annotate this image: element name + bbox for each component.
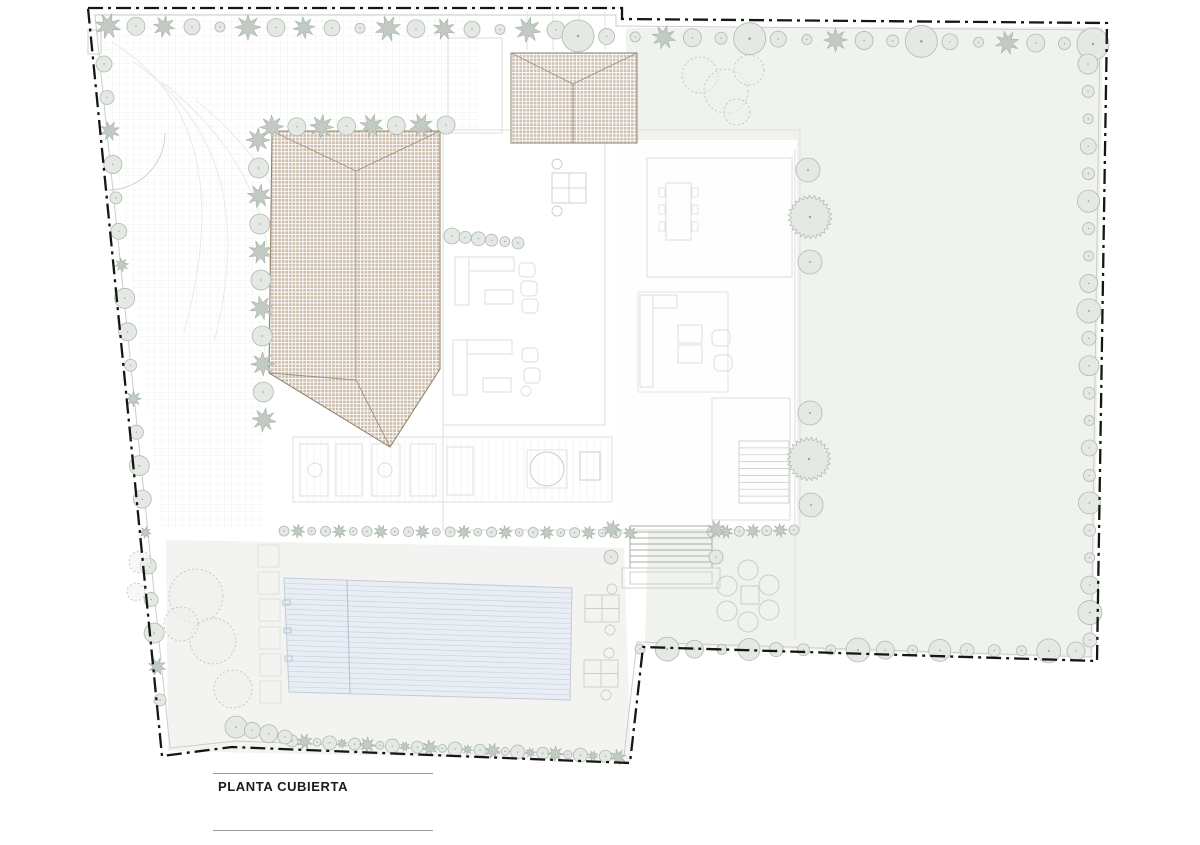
terrace-cabinet	[410, 444, 436, 496]
shrub-band-roof-left-tree-icon-center	[259, 223, 261, 225]
shrub-row-courtyard-tree-icon-center	[504, 241, 505, 242]
tree-row-bottom-right-tree-icon-center	[1075, 650, 1076, 651]
shrub-band-roof-left-tree-icon-center	[258, 167, 260, 169]
hedge-bottom-tree-icon-center	[316, 742, 317, 743]
shrub-row-pool-corner-tree-icon-center	[252, 730, 253, 731]
garden-tree-icon-center	[809, 261, 811, 263]
tree-col-left-tree-icon-center	[153, 632, 155, 634]
tree-row-top-left-tree-icon-center	[135, 26, 136, 27]
hedge-mid-left-tree-icon-center	[491, 532, 492, 533]
tree-col-right-tree-icon-center	[1088, 365, 1090, 367]
tree-row-bottom-right-tree-icon-center	[966, 650, 967, 651]
tree-col-right-tree-icon-center	[1087, 118, 1088, 119]
shrub-band-roof-top-tree-icon-center	[396, 125, 397, 126]
tree-col-right-tree-icon-center	[1087, 91, 1088, 92]
shrub-icon	[291, 524, 305, 538]
tree-col-right-tree-icon-center	[1089, 584, 1090, 585]
tree-row-top-right-tree-icon-center	[720, 38, 721, 39]
shrub-icon	[582, 526, 596, 540]
tree-col-right-tree-icon-center	[1089, 612, 1091, 614]
tree-row-top-left-tree-icon-center	[359, 28, 360, 29]
hedge-bottom-tree-icon-center	[504, 751, 505, 752]
hedge-mid-right-tree-icon-center	[793, 529, 794, 530]
garden-tree-icon-center	[807, 169, 809, 171]
tree-col-right-tree-icon-center	[1088, 392, 1089, 393]
shrub-band-roof-top-tree-icon-center	[445, 124, 446, 125]
bbq-unit	[580, 452, 600, 480]
hedge-bottom-tree-icon-center	[605, 756, 606, 757]
tree-row-top-right-tree-icon-center	[577, 35, 580, 38]
hedge-mid-left-tree-icon-center	[560, 532, 561, 533]
hedge-bottom-tree-icon-center	[417, 746, 418, 747]
tree-row-bottom-right-tree-icon-center	[694, 649, 695, 650]
tree-col-right-tree-icon-center	[1088, 146, 1089, 147]
hedge-mid-left-tree-icon-center	[366, 531, 367, 532]
tree-row-top-left-tree-icon-center	[275, 27, 276, 28]
hedge-bottom-tree-icon-center	[542, 753, 543, 754]
palm-tree-icon-center	[808, 458, 810, 460]
sofa	[469, 257, 514, 271]
tree-row-bottom-right-tree-icon-center	[666, 648, 668, 650]
shrub-icon	[149, 658, 166, 675]
hedge-bottom-tree-icon-center	[379, 745, 380, 746]
tree-col-left-tree-icon-center	[142, 498, 143, 499]
tree-row-top-left-tree-icon-center	[555, 29, 556, 30]
hedge-mid-right-tree-icon-center	[766, 530, 767, 531]
tree-col-left-tree-icon-center	[118, 231, 119, 232]
organic-tree-icon	[164, 607, 198, 641]
tree-col-left-tree-icon-center	[136, 432, 137, 433]
tree-col-left-tree-icon-center	[139, 465, 141, 467]
tree-col-left-tree-icon-center	[112, 164, 113, 165]
hedge-mid-left-tree-icon-center	[602, 532, 603, 533]
tree-col-right-tree-icon-center	[1088, 200, 1090, 202]
shrub-row-courtyard-tree-icon-center	[491, 240, 492, 241]
hedge-mid-left-tree-icon-center	[408, 531, 409, 532]
tree-row-top-left-tree-icon-center	[219, 26, 220, 27]
tree-col-left-tree-icon-center	[106, 97, 107, 98]
armchair	[524, 368, 540, 383]
shrub-row-courtyard-tree-icon-center	[465, 237, 466, 238]
hedge-mid-left-tree-icon-center	[283, 530, 284, 531]
chair	[552, 206, 562, 216]
armchair	[521, 281, 537, 296]
tree-row-bottom-right-tree-icon-center	[885, 649, 886, 650]
hedge-mid-left-tree-icon-center	[394, 531, 395, 532]
hedge-bottom-tree-icon-center	[354, 743, 355, 744]
organic-tree-icon	[127, 583, 145, 601]
tree-row-top-right-tree-icon-center	[1092, 43, 1095, 46]
hedge-bottom-tree-icon-center	[329, 742, 330, 743]
shrub-icon	[374, 525, 387, 538]
tree-row-top-right-tree-icon-center	[748, 37, 751, 40]
tree-row-top-right-tree-icon-center	[920, 40, 923, 43]
shrub-icon	[824, 28, 848, 52]
garden-tree-icon-center	[810, 504, 812, 506]
terrace-cabinet	[372, 444, 400, 496]
shrub-row-pool-corner-tree-icon-center	[268, 733, 269, 734]
pool	[283, 578, 572, 700]
tree-row-top-right-tree-icon-center	[1064, 43, 1065, 44]
title-underline	[213, 830, 433, 831]
tree-col-left-tree-icon-center	[115, 197, 116, 198]
tree-row-bottom-right-tree-icon-center	[803, 649, 804, 650]
chair	[552, 159, 562, 169]
palm-tree-icon-center	[809, 216, 811, 218]
shrub-row-pool-corner-tree-icon-center	[235, 726, 237, 728]
tree-col-right-tree-icon-center	[1088, 310, 1090, 312]
tree-col-right-tree-icon-center	[1089, 420, 1090, 421]
tree-col-right-tree-icon-center	[1089, 447, 1090, 448]
tree-col-left-tree-icon-center	[127, 331, 128, 332]
hedge-mid-left-tree-icon-center	[311, 530, 312, 531]
tree-col-left-tree-icon-center	[103, 63, 104, 64]
shrub-icon	[623, 526, 637, 540]
tree-row-bottom-right-tree-icon-center	[939, 649, 941, 651]
shrub-icon	[115, 258, 129, 272]
terrace-stool	[378, 463, 392, 477]
armchair	[519, 263, 535, 277]
hedge-bottom-tree-icon-center	[479, 750, 480, 751]
hedge-bottom-tree-icon-center	[454, 748, 455, 749]
coffee-table	[485, 290, 513, 304]
tree-col-right-tree-icon-center	[1089, 557, 1090, 558]
tree-row-top-right-tree-icon-center	[863, 40, 864, 41]
tree-row-bottom-right-tree-icon-center	[1048, 650, 1050, 652]
shrub-icon	[416, 525, 430, 539]
tree-col-right-tree-icon-center	[1088, 338, 1089, 339]
hedge-mid-left-tree-icon-center	[449, 531, 450, 532]
shrub-band-roof-top-tree-icon-center	[296, 126, 297, 127]
organic-tree-icon	[724, 99, 750, 125]
tree-row-top-right-tree-icon-center	[635, 36, 636, 37]
tree-row-top-right-tree-icon-center	[778, 38, 779, 39]
tree-row-top-left-tree-icon-center	[415, 28, 416, 29]
shrub-row-courtyard-tree-icon-center	[451, 235, 452, 236]
tree-row-bottom-right-tree-icon-center	[994, 650, 995, 651]
shrub-icon	[515, 17, 541, 43]
tree-col-right-tree-icon-center	[1089, 530, 1090, 531]
terrace-cabinet	[447, 447, 473, 495]
organic-tree-icon	[734, 55, 764, 85]
shrub-icon	[332, 524, 346, 538]
tree-col-right-tree-icon-center	[1087, 63, 1089, 65]
tree-col-right-tree-icon-center	[1088, 283, 1089, 284]
tree-row-top-right-tree-icon-center	[978, 42, 979, 43]
tree-row-top-left-tree-icon-center	[331, 27, 332, 28]
shrub-icon	[139, 527, 151, 539]
tree-col-left-tree-icon-center	[150, 599, 151, 600]
tree-col-left-tree-icon-center	[130, 365, 131, 366]
tree-col-right-tree-icon-center	[1089, 475, 1090, 476]
tree-col-right-tree-icon-center	[1089, 502, 1091, 504]
hedge-mid-left-tree-icon-center	[436, 531, 437, 532]
shrub-icon	[499, 525, 513, 539]
tree-col-right-tree-icon-center	[1088, 255, 1089, 256]
organic-tree-icon	[129, 551, 151, 573]
tree-col-right-tree-icon-center	[1089, 639, 1090, 640]
organic-tree-icon	[214, 670, 252, 708]
tree-row-top-left-tree-icon-center	[471, 29, 472, 30]
steps-tree-icon-center	[715, 556, 716, 557]
hedge-mid-left-tree-icon-center	[519, 532, 520, 533]
hedge-bottom-tree-icon-center	[580, 754, 581, 755]
hedge-mid-left-tree-icon-center	[477, 531, 478, 532]
hedge-mid-left-tree-icon-center	[325, 531, 326, 532]
tree-row-top-right-tree-icon-center	[949, 41, 950, 42]
coffee-table	[483, 378, 511, 392]
shrub-row-courtyard-tree-icon-center	[517, 242, 518, 243]
armchair	[522, 348, 538, 362]
shrub-band-roof-top-tree-icon-center	[346, 125, 347, 126]
hedge-bottom-tree-icon-center	[567, 754, 568, 755]
hedge-bottom-tree-icon-center	[442, 748, 443, 749]
tree-row-bottom-right-tree-icon-center	[639, 648, 640, 649]
shrub-band-roof-left-tree-icon-center	[260, 279, 262, 281]
hedge-mid-right-tree-icon-center	[739, 531, 740, 532]
tree-row-top-right-tree-icon-center	[892, 40, 893, 41]
sofa	[455, 257, 469, 305]
shrub-icon	[540, 526, 553, 539]
shrub-row-courtyard-tree-icon-center	[478, 238, 479, 239]
tree-row-bottom-right-tree-icon-center	[912, 650, 913, 651]
tree-col-right-tree-icon-center	[1088, 228, 1089, 229]
roof-small	[511, 53, 637, 143]
roof-plan-page: PLANTA CUBIERTA	[0, 0, 1200, 845]
tree-row-top-left-tree-icon-center	[191, 26, 192, 27]
tree-row-bottom-right-tree-icon-center	[1021, 650, 1022, 651]
hedge-mid-left-tree-icon-center	[574, 532, 575, 533]
hedge-mid-left-tree-icon-center	[532, 532, 533, 533]
title-overline	[213, 773, 433, 774]
shrub-band-roof-left-tree-icon-center	[263, 391, 265, 393]
hedge-mid-left-tree-icon-center	[353, 531, 354, 532]
roof-main	[269, 131, 440, 447]
tree-row-top-right-tree-icon-center	[806, 39, 807, 40]
garden-tree-icon-center	[809, 412, 811, 414]
tree-row-bottom-right-tree-icon-center	[830, 649, 831, 650]
tree-col-right-tree-icon-center	[1088, 173, 1089, 174]
tree-row-top-left-tree-icon-center	[499, 29, 500, 30]
sofa	[453, 340, 467, 395]
swimming-pool	[284, 578, 572, 700]
tree-row-top-right-tree-icon-center	[692, 37, 693, 38]
steps-tree-icon-center	[610, 556, 611, 557]
round-table-mat	[527, 450, 567, 488]
tree-col-left-tree-icon-center	[159, 699, 160, 700]
drawing-title: PLANTA CUBIERTA	[218, 779, 348, 794]
shrub-row-pool-corner-tree-icon-center	[284, 736, 285, 737]
shrub-band-roof-left-tree-icon-center	[261, 335, 263, 337]
armchair	[522, 299, 538, 313]
tree-col-left-tree-icon-center	[124, 298, 126, 300]
terrace-band	[293, 437, 612, 502]
terrace-stool	[308, 463, 322, 477]
sofa	[467, 340, 512, 354]
hedge-bottom-tree-icon-center	[517, 751, 518, 752]
tree-row-top-right-tree-icon-center	[606, 36, 607, 37]
side-table	[521, 386, 531, 396]
shrub-icon	[457, 525, 471, 539]
shrub-icon	[235, 14, 261, 40]
hedge-bottom-tree-icon-center	[392, 745, 393, 746]
tree-row-bottom-right-tree-icon-center	[857, 649, 859, 651]
site-plan-canvas	[0, 0, 1200, 845]
tree-row-top-right-tree-icon-center	[1035, 42, 1036, 43]
